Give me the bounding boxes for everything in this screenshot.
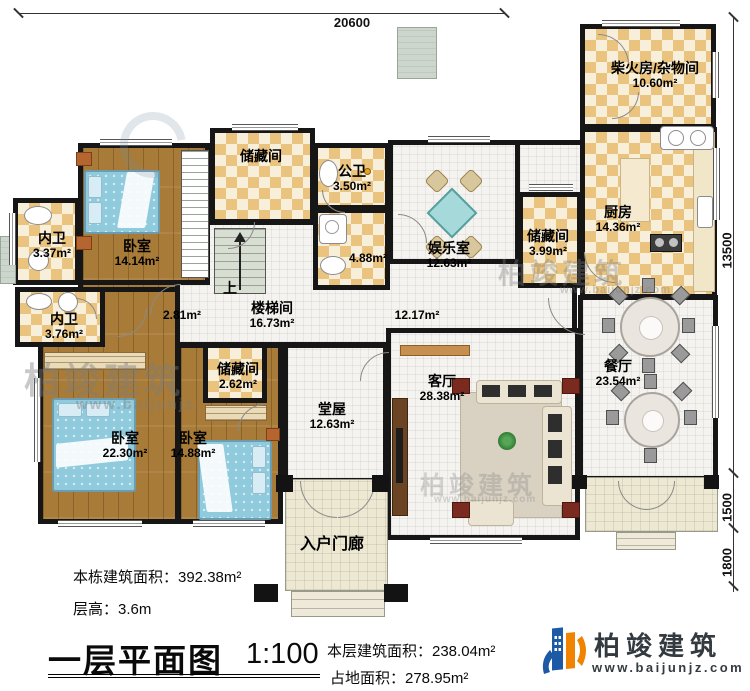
stairs-up-label: 上 — [223, 281, 237, 296]
floor-plan-canvas: 柏竣建筑 www.baijunjz. 柏竣建筑 www.baijunjz.com… — [0, 0, 750, 691]
room-label-gongwei: 公卫3.50m² — [333, 164, 371, 193]
porch-pillar — [254, 584, 278, 602]
window — [193, 520, 265, 527]
side-table — [562, 378, 580, 394]
sofa-cushion — [548, 466, 562, 484]
porch-pillar — [372, 475, 389, 492]
window — [712, 326, 719, 418]
pillow — [252, 472, 266, 494]
porch-pillar — [572, 475, 587, 489]
room-label-chaihuofang: 柴火房/杂物间10.60m² — [611, 61, 699, 90]
sofa-cushion — [482, 385, 500, 397]
logo-site-text: www.baijunjz.com — [592, 660, 744, 675]
dim-top-value: 20600 — [334, 15, 370, 30]
dining-chair — [642, 358, 655, 373]
room-label-bedroom-b: 卧室22.30m² — [103, 431, 148, 460]
window — [602, 20, 680, 27]
room-label-storage-small: 储藏间2.62m² — [217, 362, 259, 391]
room-label-keting: 客厅28.38m² — [420, 374, 465, 403]
plant — [498, 432, 516, 450]
logo-swoosh-orange — [577, 636, 586, 666]
room-label-bedroom-c: 卧室14.88m² — [171, 431, 216, 460]
window — [58, 520, 142, 527]
kitchen-sink — [697, 196, 713, 228]
title-underline — [48, 674, 320, 678]
stair-flight-upper — [181, 150, 209, 278]
room-label-porch: 入户门廊 — [300, 537, 364, 552]
sink-bowl — [668, 130, 684, 146]
sofa-cushion — [548, 414, 562, 432]
wash-basin — [58, 292, 78, 312]
dim-right-upper: 13500 — [720, 221, 735, 281]
watermark-site: www.baijunjz.com — [560, 284, 671, 296]
stove-burner — [669, 238, 678, 247]
window — [232, 124, 298, 131]
porch-steps — [291, 591, 385, 617]
room-label-neiwei-2: 内卫3.76m² — [45, 312, 83, 341]
logo-brand-text: 柏竣建筑 — [594, 626, 722, 663]
sofa-cushion — [508, 385, 526, 397]
dining-chair — [602, 318, 615, 333]
room-label-shower: 4.88m² — [349, 251, 387, 265]
room-label-kitchen: 厨房14.36m² — [596, 205, 641, 234]
wash-basin — [320, 256, 346, 275]
porch-pillar — [704, 475, 719, 489]
dining-table-1 — [620, 297, 680, 357]
room-label-storage-top: 储藏间 — [240, 149, 282, 164]
room-label-stair-hall: 楼梯间16.73m² — [250, 301, 295, 330]
porch-pillar — [276, 475, 293, 492]
pillow — [252, 446, 266, 468]
hall-area-small: 2.81m² — [163, 308, 201, 322]
toilet — [24, 206, 52, 225]
plan-scale: 1:100 — [246, 638, 319, 671]
side-table — [562, 502, 580, 518]
sofa-cushion — [534, 385, 552, 397]
dining-table-2 — [624, 392, 680, 448]
room-label-yuleshi: 娱乐室12.63m² — [427, 241, 472, 270]
footprint-area: 占地面积：278.95m² — [330, 667, 468, 688]
dining-chair — [684, 410, 697, 425]
window — [529, 184, 573, 191]
dining-chair — [644, 374, 657, 389]
total-building-area: 本栋建筑面积：392.38m² — [73, 566, 241, 587]
logo: 柏竣建筑 www.baijunjz.com — [538, 620, 743, 684]
sofa-cushion — [548, 440, 562, 458]
balcony-platform-top — [397, 27, 437, 79]
logo-building-icon — [538, 622, 590, 687]
room-label-canting: 餐厅23.54m² — [596, 359, 641, 388]
nightstand — [266, 428, 280, 441]
window — [713, 148, 720, 220]
stove-burner — [655, 238, 664, 247]
porch-pillar — [384, 584, 408, 602]
sink-bowl — [690, 130, 706, 146]
pillow — [88, 202, 102, 224]
washing-machine-door — [325, 220, 339, 234]
nightstand — [76, 152, 92, 166]
this-floor-area: 本层建筑面积：238.04m² — [327, 640, 495, 661]
floor-height: 层高：3.6m — [73, 598, 151, 619]
window — [430, 537, 522, 544]
room-label-neiwei-1: 内卫3.37m² — [33, 231, 71, 260]
watermark-site: www.baijunjz. — [76, 396, 201, 413]
tv-screen — [396, 428, 403, 483]
dim-right-mid: 1500 — [720, 478, 735, 538]
shoe-cabinet — [400, 345, 470, 356]
dining-porch-steps — [616, 532, 676, 550]
room-label-storage-right: 储藏间3.99m² — [527, 229, 569, 258]
toilet — [26, 293, 52, 310]
window — [9, 213, 16, 265]
watermark-site: www.baijunjz.com — [434, 494, 536, 505]
dim-line-top — [18, 13, 505, 14]
storage-top-floor — [210, 128, 315, 224]
dining-chair — [644, 448, 657, 463]
dining-chair — [606, 410, 619, 425]
dining-chair — [682, 318, 695, 333]
room-label-bedroom-a: 卧室14.14m² — [115, 239, 160, 268]
nightstand — [76, 236, 92, 250]
window — [428, 136, 490, 143]
dim-right-lower: 1800 — [720, 533, 735, 593]
stair-arrow-line — [239, 240, 241, 290]
hall-area-main: 12.17m² — [395, 308, 440, 322]
room-label-tangwu: 堂屋12.63m² — [310, 402, 355, 431]
pillow — [88, 176, 102, 198]
window — [712, 52, 719, 98]
